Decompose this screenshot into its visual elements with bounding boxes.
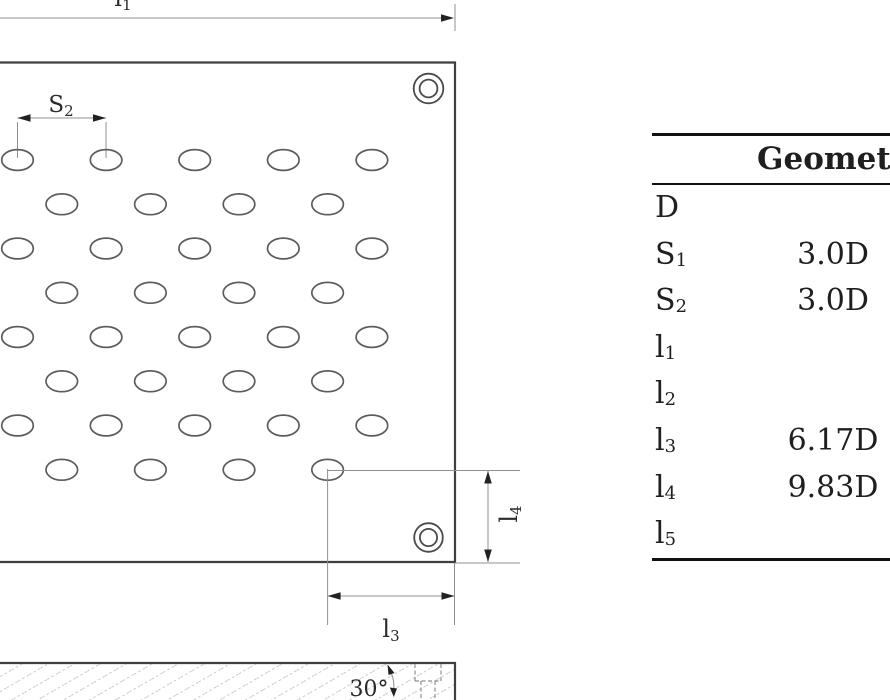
arrow-left-icon: [18, 114, 31, 121]
table-header: Geometry: [652, 136, 890, 185]
arrow-up-icon: [484, 471, 492, 484]
hole: [2, 327, 34, 348]
param-value: 6.17D: [762, 418, 890, 465]
hole: [223, 371, 255, 392]
l1-dimension: l1: [0, 0, 455, 31]
param-label: l3: [652, 418, 762, 465]
hole: [179, 327, 211, 348]
bolt-hole-inner-circle: [420, 80, 438, 98]
arrow-right-icon: [93, 114, 106, 121]
hole: [312, 371, 344, 392]
bolt-hole-bottom-right: [414, 523, 443, 552]
s2-label: S2: [48, 92, 73, 120]
hole: [356, 415, 388, 436]
hole: [90, 415, 122, 436]
param-label: l5: [652, 511, 762, 558]
section-view: 30°: [0, 663, 455, 700]
hole: [135, 282, 167, 303]
param-label: S1: [652, 232, 762, 279]
l1-label: l1: [114, 0, 131, 14]
table-row: l2: [652, 371, 890, 418]
table-row: D: [652, 185, 890, 232]
l3-label: l3: [382, 615, 399, 645]
bolt-hole-top-right: [414, 74, 444, 104]
param-label: S2: [652, 278, 762, 325]
param-label: D: [652, 185, 762, 232]
hole: [356, 327, 388, 348]
hole: [179, 150, 211, 171]
hole: [268, 415, 300, 436]
param-value: [762, 325, 890, 372]
hole: [223, 282, 255, 303]
table-row: S13.0D: [652, 232, 890, 279]
param-value: [762, 185, 890, 232]
table-row: l36.17D: [652, 418, 890, 465]
table-row: l1: [652, 325, 890, 372]
bolt-hole-outer-circle: [414, 74, 444, 104]
hole: [268, 150, 300, 171]
hole: [223, 194, 255, 215]
table-row: l49.83D: [652, 465, 890, 512]
param-value: [762, 371, 890, 418]
bolt-hole-inner-circle: [420, 529, 437, 546]
param-value: 3.0D: [762, 232, 890, 279]
hole-pattern: [2, 150, 388, 481]
perforated-plate-outline: [0, 63, 455, 563]
hole: [268, 327, 300, 348]
hole: [223, 459, 255, 480]
hole: [135, 371, 167, 392]
param-value: [762, 511, 890, 558]
hole: [46, 194, 78, 215]
param-label: l1: [652, 325, 762, 372]
hole: [356, 150, 388, 171]
l4-label: l4: [495, 505, 525, 522]
param-value: 9.83D: [762, 465, 890, 512]
hole: [46, 459, 78, 480]
table-rows: DS13.0DS23.0Dl1l2l36.17Dl49.83Dl5: [652, 185, 890, 561]
hole: [312, 194, 344, 215]
hole: [179, 238, 211, 259]
hole: [312, 282, 344, 303]
hole: [90, 238, 122, 259]
figure-page: l1 S2 l4: [0, 0, 890, 700]
param-value: 3.0D: [762, 278, 890, 325]
hole: [268, 238, 300, 259]
arrow-right-icon: [441, 14, 454, 22]
hole: [179, 415, 211, 436]
arrow-left-icon: [328, 592, 341, 599]
bolt-hole-outer-circle: [414, 523, 443, 552]
hole: [135, 459, 167, 480]
geometry-table: Geometry DS13.0DS23.0Dl1l2l36.17Dl49.83D…: [652, 133, 890, 561]
s2-dimension: S2: [18, 92, 107, 158]
hole: [2, 415, 34, 436]
param-label: l2: [652, 371, 762, 418]
arrow-down-icon: [484, 550, 492, 563]
hole: [356, 238, 388, 259]
hole: [135, 194, 167, 215]
hole: [46, 371, 78, 392]
chamfer-angle-label: 30°: [350, 677, 389, 700]
hole: [90, 327, 122, 348]
l4-dimension: l4: [328, 471, 525, 564]
hole: [2, 238, 34, 259]
table-row: l5: [652, 511, 890, 561]
arrow-right-icon: [442, 592, 455, 599]
param-label: l4: [652, 465, 762, 512]
l3-dimension: l3: [328, 469, 455, 645]
table-row: S23.0D: [652, 278, 890, 325]
hole: [46, 282, 78, 303]
